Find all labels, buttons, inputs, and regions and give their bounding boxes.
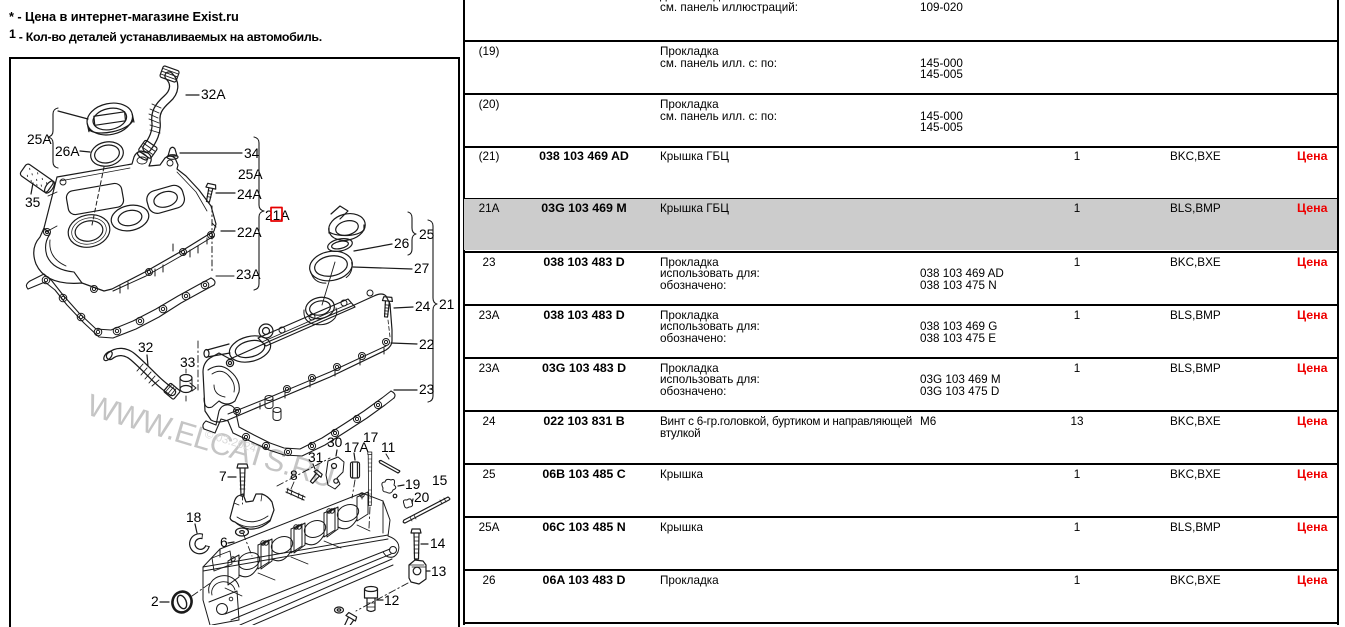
svg-text:23A: 23A bbox=[236, 267, 261, 282]
svg-text:18: 18 bbox=[186, 510, 202, 525]
svg-text:23: 23 bbox=[419, 382, 435, 397]
svg-text:12: 12 bbox=[384, 593, 399, 608]
svg-text:32: 32 bbox=[138, 340, 153, 355]
svg-text:15: 15 bbox=[432, 473, 448, 488]
svg-text:25A: 25A bbox=[27, 132, 52, 147]
svg-text:25: 25 bbox=[419, 227, 435, 242]
svg-text:30: 30 bbox=[327, 435, 343, 450]
svg-text:7: 7 bbox=[219, 469, 227, 484]
svg-text:13: 13 bbox=[431, 564, 447, 579]
svg-text:34: 34 bbox=[244, 146, 260, 161]
svg-text:21: 21 bbox=[439, 297, 454, 312]
svg-text:33: 33 bbox=[180, 355, 196, 370]
svg-text:11: 11 bbox=[381, 440, 395, 455]
svg-text:35: 35 bbox=[25, 195, 41, 210]
svg-text:17: 17 bbox=[363, 430, 378, 445]
svg-text:26A: 26A bbox=[55, 144, 80, 159]
svg-text:20: 20 bbox=[414, 490, 430, 505]
svg-text:27: 27 bbox=[414, 261, 429, 276]
svg-text:2: 2 bbox=[151, 594, 159, 609]
svg-text:22: 22 bbox=[419, 337, 434, 352]
svg-text:32A: 32A bbox=[201, 87, 226, 102]
svg-text:26: 26 bbox=[394, 236, 410, 251]
svg-text:14: 14 bbox=[430, 536, 446, 551]
svg-text:8: 8 bbox=[290, 468, 298, 483]
svg-text:24: 24 bbox=[415, 299, 431, 314]
